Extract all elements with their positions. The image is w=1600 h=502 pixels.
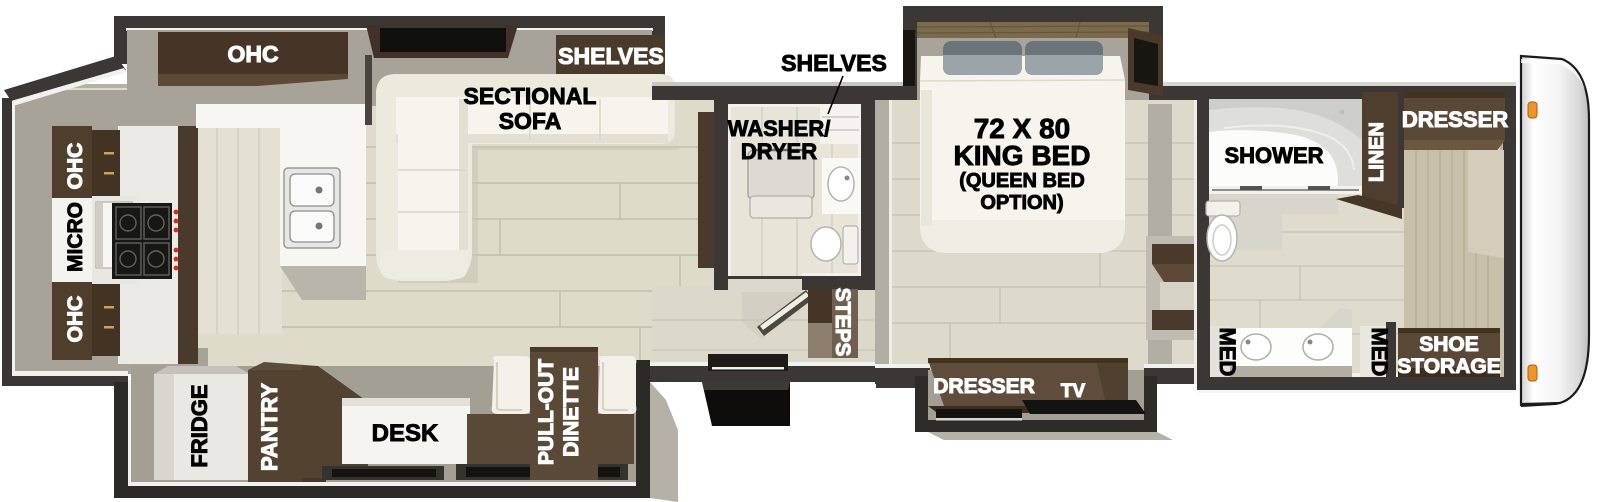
svg-text:SHOWER: SHOWER (1225, 143, 1324, 168)
svg-text:MED: MED (1215, 328, 1240, 377)
svg-text:SOFA: SOFA (499, 108, 562, 134)
svg-text:MICRO: MICRO (64, 202, 87, 272)
svg-text:LINEN: LINEN (1366, 122, 1388, 182)
svg-text:PANTRY: PANTRY (257, 383, 282, 471)
svg-text:STEPS: STEPS (831, 288, 854, 357)
svg-text:(QUEEN BED: (QUEEN BED (959, 170, 1085, 192)
svg-text:MED: MED (1367, 328, 1392, 377)
svg-text:OHC: OHC (64, 143, 87, 190)
svg-text:STORAGE: STORAGE (1397, 355, 1500, 378)
svg-text:OHC: OHC (64, 296, 87, 343)
svg-text:DRYER: DRYER (741, 139, 817, 164)
svg-text:WASHER/: WASHER/ (728, 116, 831, 141)
svg-text:DINETTE: DINETTE (560, 367, 583, 457)
svg-text:DRESSER: DRESSER (1402, 107, 1508, 132)
svg-text:SECTIONAL: SECTIONAL (464, 83, 597, 109)
svg-text:SHOE: SHOE (1419, 333, 1479, 356)
svg-text:DRESSER: DRESSER (933, 375, 1035, 398)
svg-text:SHELVES: SHELVES (558, 43, 664, 69)
svg-text:TV: TV (1061, 381, 1086, 402)
svg-text:FRIDGE: FRIDGE (187, 384, 212, 467)
svg-text:OPTION): OPTION) (980, 192, 1063, 214)
svg-text:PULL-OUT: PULL-OUT (535, 359, 558, 465)
svg-text:SHELVES: SHELVES (781, 50, 887, 76)
svg-text:OHC: OHC (227, 41, 278, 67)
svg-text:KING BED: KING BED (954, 140, 1091, 171)
svg-text:DESK: DESK (372, 420, 439, 447)
